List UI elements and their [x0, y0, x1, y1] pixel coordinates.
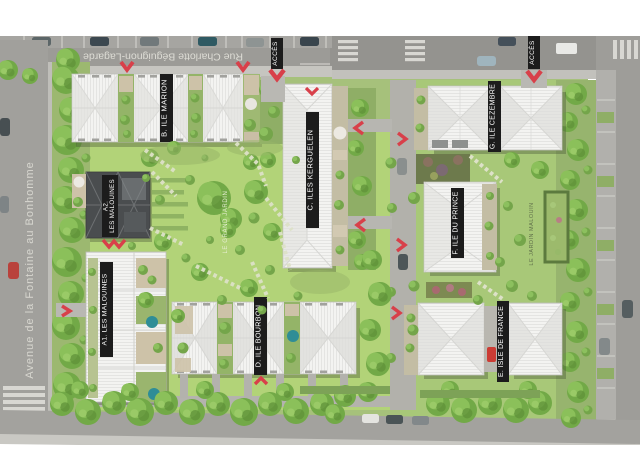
- svg-text:G. ILE CEZEMBRE: G. ILE CEZEMBRE: [490, 84, 497, 149]
- svg-text:Avenue de la Fontaine au Bonho: Avenue de la Fontaine au Bonhomme: [24, 161, 36, 378]
- svg-text:C. ILES KERGUELEN: C. ILES KERGUELEN: [306, 130, 315, 211]
- svg-text:B. ILE MARION: B. ILE MARION: [160, 79, 169, 137]
- svg-text:A1. LES MALOUINES: A1. LES MALOUINES: [102, 273, 109, 345]
- svg-text:E. ISLE DE FRANCE: E. ISLE DE FRANCE: [498, 306, 505, 377]
- svg-text:ACCÈS: ACCÈS: [527, 40, 536, 65]
- svg-text:Rue Charlotte Béguignon-Lagard: Rue Charlotte Béguignon-Lagarde: [83, 51, 243, 63]
- svg-text:ACCÈS: ACCÈS: [270, 41, 279, 66]
- svg-text:F. ILE DU PRINCE: F. ILE DU PRINCE: [453, 191, 460, 254]
- svg-text:LES MALOUINES: LES MALOUINES: [109, 179, 116, 233]
- svg-text:LE GRAND JARDIN: LE GRAND JARDIN: [223, 190, 229, 253]
- svg-text:LE JARDIN MALOUIN: LE JARDIN MALOUIN: [529, 202, 535, 265]
